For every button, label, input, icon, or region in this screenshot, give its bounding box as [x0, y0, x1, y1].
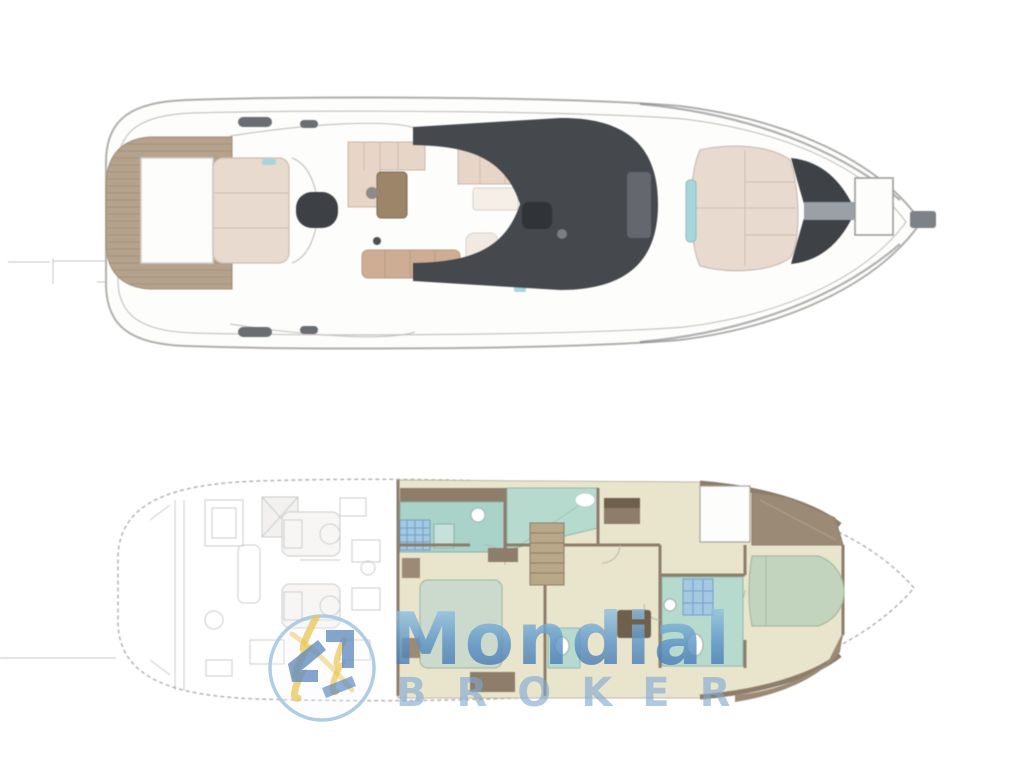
bow-sunpad [686, 146, 798, 271]
galley-sink [471, 508, 485, 522]
deck-fitting [373, 237, 381, 245]
mondial-broker-circle-emblem [270, 616, 374, 720]
aft-seat-dark [296, 192, 338, 228]
dinette-desk [604, 498, 640, 524]
yacht-layout-page: Mondial BROKER [0, 0, 1024, 768]
helm-seat [522, 202, 552, 229]
deck-plans-figure: Mondial BROKER [0, 0, 1024, 768]
helm-wheel [557, 229, 567, 239]
anchor-roller [910, 211, 936, 228]
galley [400, 488, 505, 552]
deck-hatch [700, 486, 750, 542]
bow-walkway [804, 202, 858, 220]
cockpit-table [377, 172, 407, 218]
tender-garage-hatch [141, 158, 213, 263]
brand-wordmark: Mondial [390, 597, 733, 681]
bow-cabin-bed [749, 556, 844, 626]
aft-sunpad [213, 158, 289, 263]
cockpit-coffee-table [473, 188, 518, 210]
main-deck-plan [8, 98, 936, 349]
brand-suffix: BROKER [396, 670, 760, 716]
helm-console [627, 172, 651, 238]
bow-skylight [686, 180, 696, 242]
cockpit-stool [366, 187, 378, 199]
crew-pillow [575, 493, 595, 507]
companionway-stairs [530, 523, 564, 585]
bow-wardrobe [752, 492, 843, 545]
anchor-locker [855, 178, 893, 235]
